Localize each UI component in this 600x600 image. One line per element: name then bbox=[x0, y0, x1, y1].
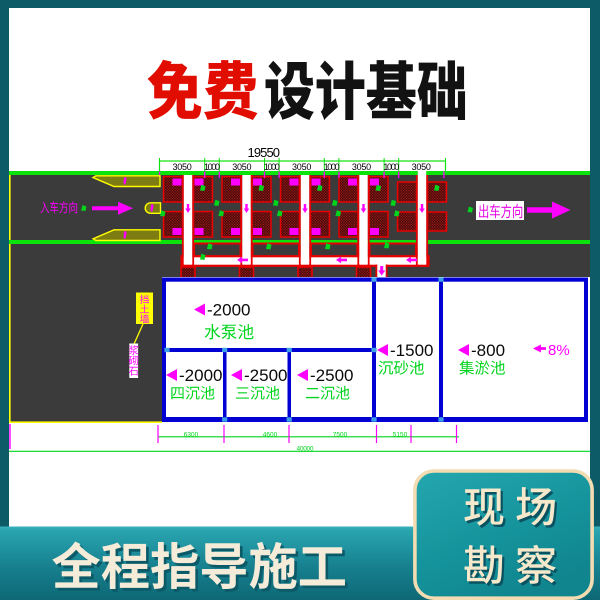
svg-text:-2500: -2500 bbox=[310, 366, 353, 385]
svg-text:40000: 40000 bbox=[297, 446, 314, 453]
svg-text:19550: 19550 bbox=[248, 145, 281, 160]
svg-text:-2500: -2500 bbox=[244, 366, 287, 385]
svg-text:6300: 6300 bbox=[184, 431, 199, 438]
svg-text:-2000: -2000 bbox=[179, 366, 222, 385]
svg-text:3050: 3050 bbox=[232, 162, 251, 172]
svg-text:5150: 5150 bbox=[393, 431, 408, 438]
svg-text:3050: 3050 bbox=[352, 162, 371, 172]
svg-text:-1500: -1500 bbox=[390, 341, 433, 360]
svg-text:7500: 7500 bbox=[333, 431, 348, 438]
svg-text:3050: 3050 bbox=[412, 162, 431, 172]
svg-text:4600: 4600 bbox=[263, 431, 278, 438]
svg-text:1000: 1000 bbox=[204, 162, 220, 172]
svg-text:3050: 3050 bbox=[292, 162, 311, 172]
svg-text:1000: 1000 bbox=[383, 162, 399, 172]
svg-text:1000: 1000 bbox=[264, 162, 280, 172]
svg-text:8%: 8% bbox=[548, 342, 570, 359]
svg-text:3050: 3050 bbox=[172, 162, 191, 172]
svg-text:-2000: -2000 bbox=[207, 301, 250, 320]
svg-text:-800: -800 bbox=[471, 341, 505, 360]
svg-text:1000: 1000 bbox=[324, 162, 340, 172]
